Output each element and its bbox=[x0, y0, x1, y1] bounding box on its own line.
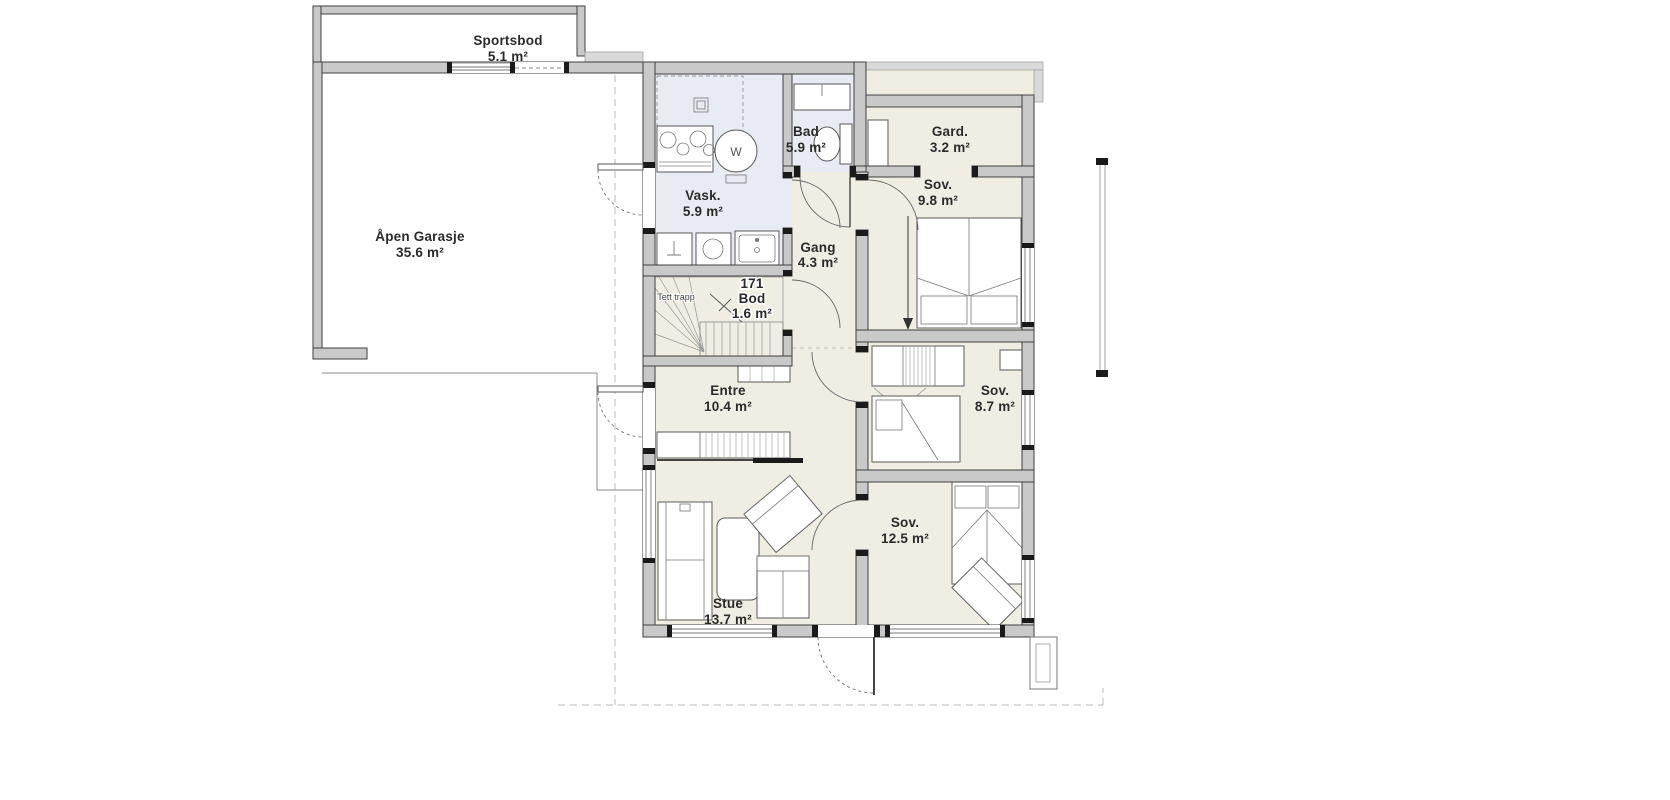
bod-number: 171 bbox=[740, 276, 763, 291]
bod-area: 1.6 m² bbox=[732, 306, 773, 321]
window-cap bbox=[447, 62, 452, 73]
corridor-east-wall bbox=[856, 402, 868, 500]
sov3-area: 12.5 m² bbox=[881, 531, 929, 546]
gard-bottom-wall bbox=[866, 166, 920, 177]
gard-area: 3.2 m² bbox=[930, 140, 971, 155]
sov2-window bbox=[1022, 395, 1034, 445]
trapp-label: Tett trapp bbox=[657, 292, 695, 302]
utility-sink-icon bbox=[735, 231, 779, 266]
gard-opening-cap bbox=[972, 166, 978, 177]
sov3-window bbox=[1022, 560, 1034, 618]
sov1-label: Sov. bbox=[924, 177, 952, 192]
nightstand-icon bbox=[1000, 350, 1024, 370]
front-door-leaf bbox=[598, 386, 643, 392]
sov1-bottom-wall bbox=[856, 330, 1034, 342]
door-cap bbox=[783, 172, 792, 178]
garage-window bbox=[452, 64, 510, 73]
window-cap bbox=[1000, 625, 1005, 637]
door-cap bbox=[643, 162, 655, 168]
door-cap bbox=[856, 402, 868, 408]
stue-area: 13.7 m² bbox=[704, 612, 752, 627]
front-door-swing-arc bbox=[598, 392, 643, 437]
entre-top-wall bbox=[643, 356, 792, 366]
entry-wardrobe-icon bbox=[657, 432, 790, 458]
window-cap bbox=[1022, 555, 1034, 560]
sportsbod-top-wall bbox=[313, 6, 585, 14]
window-cap bbox=[667, 625, 672, 637]
bad-gard-wall bbox=[854, 62, 866, 166]
toilet-tank bbox=[840, 124, 852, 164]
bod-label: Bod bbox=[739, 291, 766, 306]
door-cap bbox=[874, 625, 880, 637]
sov1-window bbox=[1022, 248, 1034, 322]
stue-label: Stue bbox=[713, 596, 743, 611]
window-cap bbox=[1022, 390, 1034, 395]
window-cap bbox=[1022, 322, 1034, 327]
balcony-rail-line bbox=[1100, 164, 1105, 370]
entre-area: 10.4 m² bbox=[704, 399, 752, 414]
faucet-dot bbox=[755, 238, 759, 242]
window-cap bbox=[772, 625, 777, 637]
laundry-sink-counter bbox=[657, 126, 713, 172]
entre-label: Entre bbox=[710, 383, 746, 398]
door-cap bbox=[643, 228, 655, 234]
door-cap bbox=[850, 166, 856, 177]
sov2-label: Sov. bbox=[981, 383, 1009, 398]
floor-plan-page: W bbox=[0, 0, 1670, 800]
door-cap bbox=[856, 550, 868, 556]
stue-exit-door-gap bbox=[818, 625, 874, 637]
gang-sov1-wall bbox=[856, 230, 868, 330]
door-cap bbox=[856, 494, 868, 500]
window-cap bbox=[1022, 618, 1034, 623]
floor-plan-drawing: W bbox=[0, 0, 1670, 800]
gard-top-wall bbox=[866, 95, 1034, 107]
sov3-bottom-window bbox=[890, 625, 1000, 637]
door-cap bbox=[783, 270, 792, 276]
gard-opening-cap bbox=[914, 166, 920, 177]
stue-left-window bbox=[643, 470, 655, 558]
coffee-table-icon bbox=[717, 518, 759, 600]
eave-band-top bbox=[866, 62, 1043, 70]
side-step bbox=[1030, 637, 1057, 689]
bad-area: 5.9 m² bbox=[786, 140, 827, 155]
gard-label: Gard. bbox=[932, 124, 968, 139]
door-cap bbox=[856, 174, 868, 180]
door-leaf bbox=[598, 164, 643, 170]
door-cap bbox=[643, 448, 655, 454]
vask-label: Vask. bbox=[685, 188, 721, 203]
appliance-cabinet bbox=[657, 233, 692, 265]
bedroom1-furniture bbox=[903, 216, 1021, 330]
window-cap bbox=[1022, 445, 1034, 450]
rail-end-cap bbox=[1096, 158, 1108, 165]
garage-floor bbox=[322, 73, 643, 356]
sportsbod-left-wall bbox=[313, 6, 321, 66]
bad-label: Bad bbox=[793, 124, 819, 139]
window-cap bbox=[643, 558, 655, 563]
sov2-area: 8.7 m² bbox=[975, 399, 1016, 414]
gang-area: 4.3 m² bbox=[798, 255, 839, 270]
sportsbod-label: Sportsbod bbox=[473, 33, 542, 48]
vask-area: 5.9 m² bbox=[683, 204, 724, 219]
exit-door-swing-arc bbox=[818, 637, 874, 693]
door-cap bbox=[812, 625, 818, 637]
sportsbod-right-wall bbox=[577, 6, 585, 56]
threshold-bar bbox=[753, 458, 803, 463]
eave-band-corner bbox=[1034, 70, 1043, 102]
opening-cap bbox=[564, 62, 569, 73]
house-top-wall bbox=[643, 62, 866, 74]
door-cap bbox=[856, 230, 868, 236]
door-cap bbox=[794, 166, 800, 177]
corridor-east-wall bbox=[856, 550, 868, 637]
door-cap bbox=[856, 346, 868, 352]
door-cap bbox=[643, 382, 655, 388]
front-door-gap bbox=[643, 388, 655, 448]
gang-label: Gang bbox=[800, 240, 835, 255]
sov1-area: 9.8 m² bbox=[918, 193, 959, 208]
garage-door-gap bbox=[643, 168, 655, 228]
door-cap bbox=[783, 330, 792, 336]
window-cap bbox=[885, 625, 890, 637]
vask-bottom-wall bbox=[643, 265, 792, 276]
garage-left-wall bbox=[313, 62, 322, 356]
entry-cabinet bbox=[738, 366, 790, 382]
dryer-icon bbox=[696, 233, 731, 265]
sov2-sov3-wall bbox=[856, 470, 1034, 482]
sov3-label: Sov. bbox=[891, 515, 919, 530]
single-bed-icon bbox=[872, 396, 960, 462]
door-cap bbox=[783, 228, 792, 234]
garasje-area: 35.6 m² bbox=[396, 245, 444, 260]
rail-end-cap bbox=[1096, 370, 1108, 377]
sportsbod-area: 5.1 m² bbox=[488, 49, 529, 64]
window-cap bbox=[643, 465, 655, 470]
gard-bottom-wall bbox=[972, 166, 1034, 177]
vask-right-wall bbox=[783, 74, 792, 178]
window-cap bbox=[1022, 243, 1034, 248]
tall-cabinet bbox=[868, 120, 888, 168]
garasje-label: Åpen Garasje bbox=[375, 229, 465, 244]
washing-machine-label: W bbox=[730, 145, 742, 159]
garage-wall-stub bbox=[313, 348, 367, 359]
